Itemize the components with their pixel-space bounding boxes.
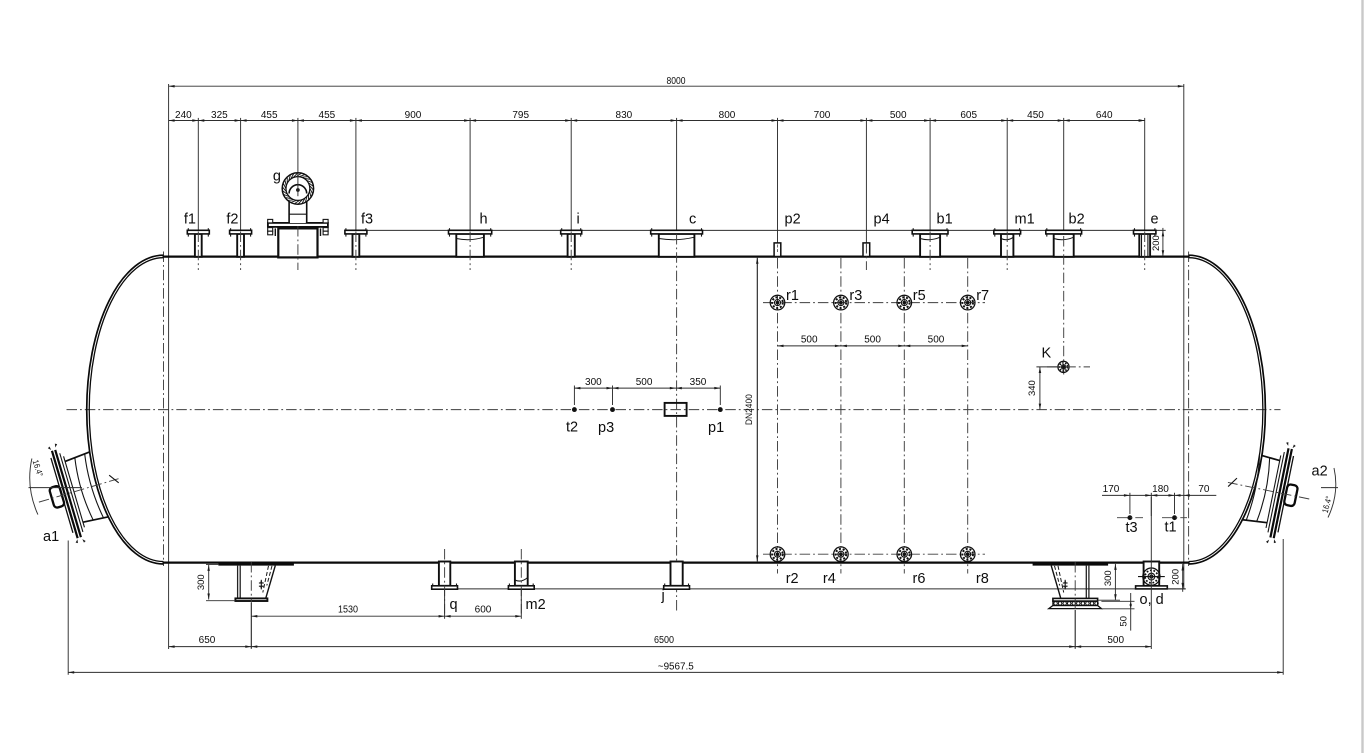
svg-text:r2: r2 (786, 571, 799, 587)
svg-text:180: 180 (1152, 484, 1169, 495)
svg-text:m2: m2 (526, 597, 546, 613)
svg-text:700: 700 (814, 110, 831, 121)
svg-text:p3: p3 (598, 420, 614, 436)
svg-text:6500: 6500 (654, 635, 674, 646)
svg-text:t2: t2 (566, 420, 578, 436)
svg-text:r6: r6 (913, 571, 926, 587)
svg-text:70: 70 (1198, 484, 1210, 495)
svg-text:e: e (1151, 212, 1159, 228)
svg-text:m1: m1 (1015, 212, 1035, 228)
svg-text:r5: r5 (913, 288, 926, 304)
svg-text:r4: r4 (823, 571, 836, 587)
svg-text:q: q (450, 597, 458, 613)
svg-text:340: 340 (1027, 380, 1038, 396)
svg-text:f3: f3 (361, 212, 373, 228)
svg-text:200: 200 (1151, 235, 1162, 251)
svg-text:830: 830 (616, 110, 633, 121)
svg-text:325: 325 (211, 110, 228, 121)
svg-text:t3: t3 (1126, 520, 1138, 536)
svg-text:650: 650 (199, 635, 216, 646)
svg-text:h: h (480, 212, 488, 228)
svg-text:f2: f2 (226, 212, 238, 228)
svg-text:r1: r1 (786, 288, 799, 304)
svg-text:j: j (661, 588, 665, 604)
svg-text:K: K (1042, 346, 1052, 362)
svg-text:500: 500 (864, 334, 881, 345)
svg-text:500: 500 (928, 334, 945, 345)
svg-text:p2: p2 (785, 212, 801, 228)
svg-text:500: 500 (1107, 635, 1124, 646)
svg-text:g: g (273, 169, 281, 185)
svg-text:795: 795 (512, 110, 529, 121)
svg-text:b2: b2 (1069, 212, 1085, 228)
svg-text:i: i (577, 212, 580, 228)
svg-text:300: 300 (1103, 570, 1114, 586)
svg-text:500: 500 (636, 377, 653, 388)
svg-text:50: 50 (1118, 616, 1129, 627)
svg-text:p1: p1 (708, 420, 724, 436)
svg-text:350: 350 (690, 377, 707, 388)
svg-text:170: 170 (1103, 484, 1120, 495)
svg-text:600: 600 (475, 605, 492, 616)
svg-text:t1: t1 (1165, 520, 1177, 536)
svg-text:a2: a2 (1312, 464, 1328, 480)
svg-text:c: c (689, 212, 696, 228)
svg-text:450: 450 (1027, 110, 1044, 121)
svg-text:200: 200 (1170, 569, 1181, 585)
svg-text:900: 900 (405, 110, 422, 121)
svg-text:500: 500 (890, 110, 907, 121)
svg-text:8000: 8000 (667, 76, 686, 87)
svg-text:DN2400: DN2400 (744, 394, 755, 425)
svg-text:1530: 1530 (338, 605, 358, 616)
svg-text:~9567.5: ~9567.5 (658, 661, 694, 672)
svg-text:r3: r3 (849, 288, 862, 304)
svg-text:455: 455 (261, 110, 278, 121)
svg-text:f1: f1 (184, 212, 196, 228)
svg-text:240: 240 (175, 110, 192, 121)
svg-text:640: 640 (1096, 110, 1113, 121)
svg-text:a1: a1 (43, 529, 59, 545)
svg-text:r8: r8 (976, 571, 989, 587)
svg-text:605: 605 (960, 110, 977, 121)
svg-text:500: 500 (801, 334, 818, 345)
svg-text:800: 800 (719, 110, 736, 121)
svg-text:455: 455 (319, 110, 336, 121)
svg-text:b1: b1 (937, 212, 953, 228)
svg-text:r7: r7 (976, 288, 989, 304)
svg-text:300: 300 (196, 574, 207, 590)
svg-text:p4: p4 (874, 212, 890, 228)
svg-text:300: 300 (585, 377, 602, 388)
